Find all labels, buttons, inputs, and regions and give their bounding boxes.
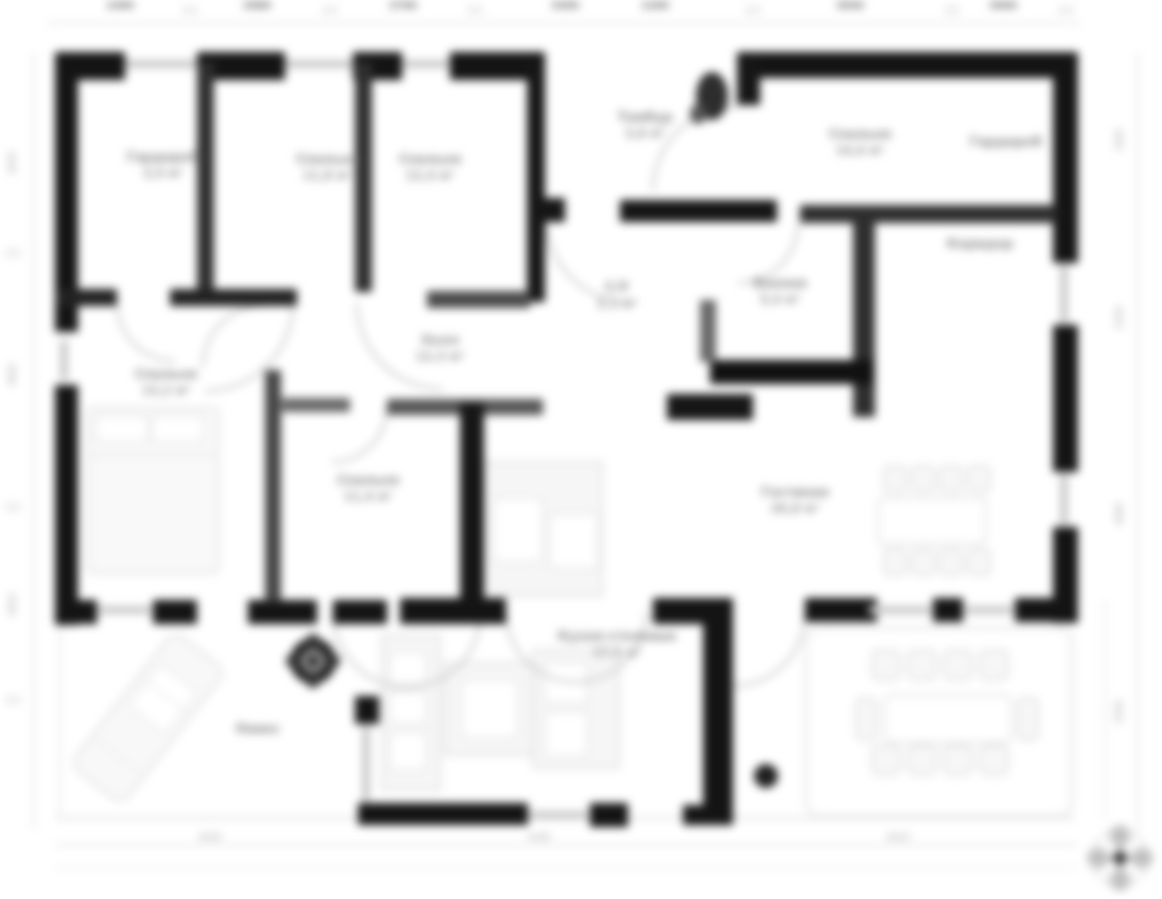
dim-tick [5, 696, 21, 705]
room-label-vestibule: Тамбур 3,8 м² [617, 110, 672, 141]
dim-tick [1058, 6, 1074, 15]
dim-bottom-1: 4530 [199, 833, 222, 843]
boiler-icon [690, 72, 728, 124]
room-label-kitchen: Кухня-столовая 17,5 м² [558, 629, 676, 660]
room-label-bathroom: Ванная 5,4 м² [753, 276, 807, 307]
bbq-stove-icon [286, 634, 340, 688]
dim-top-4: 3300 [551, 1, 579, 12]
room-label-bedroom-top-2: Спальня 12,4 м² [399, 152, 461, 183]
dim-tick [5, 249, 21, 258]
dim-tick [745, 6, 761, 15]
dim-tick [182, 6, 198, 15]
dim-top-5: 1260 [641, 1, 669, 12]
room-label-hall: Холл 12,3 м² [416, 333, 465, 364]
dim-tick [322, 6, 338, 15]
floor-plan-sheet: Гардероб 3,9 м² Спальня 11,8 м² Спальня … [0, 0, 1162, 899]
dim-left-3: 2610 [8, 594, 18, 617]
room-label-bedroom-mid: Спальня 11,4 м² [337, 473, 399, 504]
dining-set-living [878, 466, 990, 575]
wardrobe-furniture [484, 462, 602, 596]
dim-tick [5, 503, 21, 512]
room-label-bedroom-right: Спальня 14,6 м² [829, 127, 891, 158]
room-label-bedroom-top-1: Спальня 11,8 м² [296, 152, 358, 183]
room-label-closet-right: Гардероб [970, 135, 1043, 151]
door-knob-icon [754, 764, 778, 788]
dim-bottom-2: 5160 [528, 833, 551, 843]
dim-right-2: 2330 [1115, 307, 1125, 330]
dim-bottom-3: 4210 [887, 833, 910, 843]
room-label-wc: С/У 2,1 м² [597, 280, 638, 311]
dim-tick [944, 6, 960, 15]
car [70, 631, 227, 806]
dining-set-terrace [856, 650, 1038, 775]
dim-top-6: 3940 [836, 1, 864, 12]
bed [88, 408, 218, 573]
dim-left-1: 2870 [8, 152, 18, 175]
floor-plan-drawing: Гардероб 3,9 м² Спальня 11,8 м² Спальня … [0, 0, 1162, 899]
room-label-wardrobe: Гардероб 3,9 м² [127, 150, 200, 181]
dim-top-7: 3060 [989, 1, 1017, 12]
dim-top-3: 2760 [389, 1, 417, 12]
dim-right-3: 2640 [1115, 503, 1125, 526]
room-label-living: Гостиная 26,8 м² [761, 485, 829, 516]
dim-left-2: 3920 [8, 364, 18, 387]
dim-right-4: 2550 [1115, 701, 1125, 724]
dim-tick [467, 6, 483, 15]
dim-right-1: 1920 [1115, 129, 1125, 152]
room-label-bedroom-left: Спальня 13,2 м² [135, 367, 197, 398]
dim-top-1: 1490 [106, 1, 134, 12]
dim-top-2: 2980 [243, 1, 271, 12]
compass-icon [1087, 825, 1153, 891]
room-label-corridor: Коридор [947, 237, 1014, 253]
room-label-carport: Навес [236, 722, 280, 738]
